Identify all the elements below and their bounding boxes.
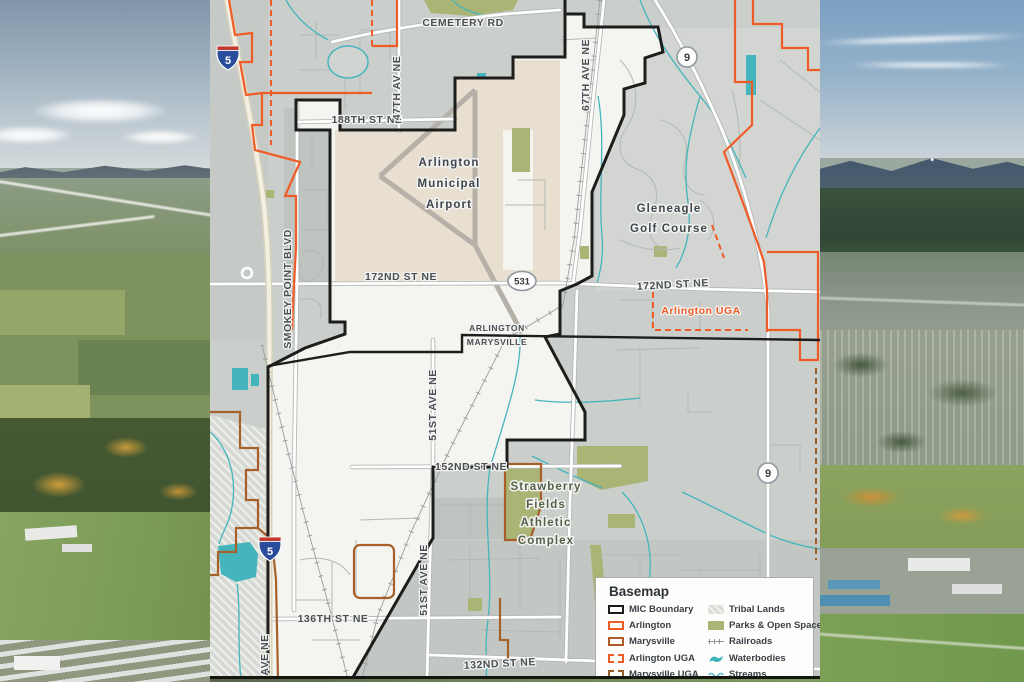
mic-boundary-swatch-icon xyxy=(608,605,624,614)
label-136th-st-ne: 136TH ST NE xyxy=(298,613,369,625)
legend-item-label: Waterbodies xyxy=(729,653,786,664)
sr9-shield-bottom-number: 9 xyxy=(765,468,771,480)
sr531-shield-number: 531 xyxy=(514,277,531,288)
white-roof xyxy=(908,558,970,571)
white-building xyxy=(14,656,60,670)
label-airport-3: Airport xyxy=(426,199,472,211)
label-152nd-st-ne: 152ND ST NE xyxy=(435,461,507,473)
legend-item-marysville: Marysville xyxy=(608,635,708,650)
legend-item-arlington-uga: Arlington UGA xyxy=(608,651,708,666)
label-strawberry-2: Fields xyxy=(526,499,566,511)
fields-flowers xyxy=(820,465,1024,557)
legend-item-waterbodies: Waterbodies xyxy=(708,651,816,666)
label-strawberry-3: Athletic xyxy=(521,517,572,529)
valley-haze xyxy=(820,252,1024,334)
sr9-shield-top: 9 xyxy=(677,47,697,67)
i5-shield-bottom-number: 5 xyxy=(267,546,273,558)
legend-item-label: Arlington xyxy=(629,620,671,631)
label-47th-av-ne: 47TH AV NE xyxy=(391,56,403,121)
label-city-marysville: MARYSVILLE xyxy=(467,337,527,347)
label-airport-1: Arlington xyxy=(419,157,480,169)
marysville-swatch-icon xyxy=(608,637,624,646)
label-67th-ave-ne: 67TH AVE NE xyxy=(580,39,592,111)
cloud xyxy=(30,98,170,124)
blue-roof xyxy=(820,595,890,606)
screenshot: 5 5 9 9 531 CEMETERY RD 188TH xyxy=(0,0,1024,682)
suburbs xyxy=(820,330,1024,470)
label-ave-ne-partial: AVE NE xyxy=(259,634,271,675)
parks-swatch-icon xyxy=(708,621,724,630)
pond-outline xyxy=(328,46,368,78)
blue-roof xyxy=(828,580,880,589)
white-roof xyxy=(952,584,1002,594)
label-172nd-st-ne-west: 172ND ST NE xyxy=(365,271,437,283)
i5-shield-top-number: 5 xyxy=(225,55,231,67)
map-panel: 5 5 9 9 531 CEMETERY RD 188TH xyxy=(210,0,820,679)
label-strawberry-1: Strawberry xyxy=(510,481,581,493)
basemap-legend: Basemap MIC Boundary Arlington Marysvill… xyxy=(595,577,814,676)
aerial-photo-right xyxy=(820,0,1024,682)
legend-item-arlington: Arlington xyxy=(608,618,708,633)
legend-item-label: Railroads xyxy=(729,636,772,647)
label-51st-ave-ne-south: 51ST AVE NE xyxy=(418,544,430,615)
label-gleneagle-1: Gleneagle xyxy=(637,203,702,215)
legend-title: Basemap xyxy=(609,584,813,599)
legend-item-label: MIC Boundary xyxy=(629,604,693,615)
forest-hills xyxy=(820,188,1024,256)
sr9-shield-bottom: 9 xyxy=(758,463,778,483)
legend-item-tribal-lands: Tribal Lands xyxy=(708,602,816,617)
forest xyxy=(0,418,210,516)
legend-grid: MIC Boundary Arlington Marysville Arling… xyxy=(608,602,813,679)
railroads-swatch-icon xyxy=(708,637,724,646)
legend-item-label: Marysville xyxy=(629,636,675,647)
label-smokey-point-blvd: SMOKEY POINT BLVD xyxy=(282,229,294,349)
label-airport-2: Municipal xyxy=(418,178,481,190)
field-large xyxy=(820,614,1024,682)
field-patch xyxy=(78,340,210,395)
arlington-swatch-icon xyxy=(608,621,624,630)
legend-item-parks-open-space: Parks & Open Space xyxy=(708,618,816,633)
legend-item-label: Tribal Lands xyxy=(729,604,785,615)
field-patch xyxy=(0,290,125,335)
legend-item-railroads: Railroads xyxy=(708,635,816,650)
tribal-lands-swatch-icon xyxy=(708,605,724,614)
label-51st-ave-ne-north: 51ST AVE NE xyxy=(427,369,439,440)
aerial-photo-left xyxy=(0,0,210,682)
label-strawberry-4: Complex xyxy=(518,535,574,547)
legend-item-label: Arlington UGA xyxy=(629,653,695,664)
label-cemetery-rd: CEMETERY RD xyxy=(422,17,503,29)
arlington-uga-swatch-icon xyxy=(608,654,624,663)
sr531-shield: 531 xyxy=(508,272,536,291)
white-building xyxy=(62,544,92,552)
label-gleneagle-2: Golf Course xyxy=(630,223,708,235)
cloud-streak xyxy=(845,62,1015,68)
waterbodies-swatch-icon xyxy=(708,654,724,663)
legend-item-label: Parks & Open Space xyxy=(729,620,820,631)
label-arlington-uga: Arlington UGA xyxy=(661,305,740,317)
label-city-arlington: ARLINGTON xyxy=(469,323,525,333)
sr9-shield-top-number: 9 xyxy=(684,52,690,64)
cloud xyxy=(120,130,200,144)
sky xyxy=(820,0,1024,158)
legend-item-mic-boundary: MIC Boundary xyxy=(608,602,708,617)
